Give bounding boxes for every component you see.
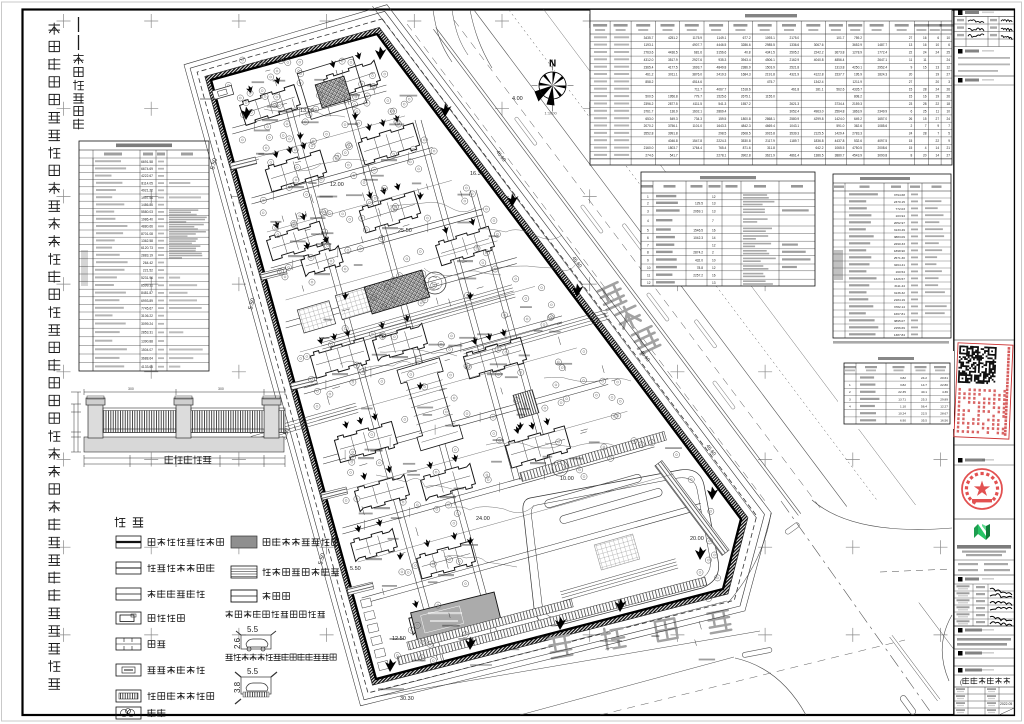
svg-text:6691.58: 6691.58: [141, 160, 153, 164]
svg-text:11: 11: [647, 274, 651, 278]
svg-text:35.5: 35.5: [921, 419, 927, 423]
svg-text:8701.08: 8701.08: [141, 232, 153, 236]
svg-text:8114.05: 8114.05: [141, 181, 153, 185]
svg-text:298.5: 298.5: [718, 132, 726, 136]
svg-text:24: 24: [946, 58, 950, 62]
svg-text:3915.8: 3915.8: [765, 132, 775, 136]
svg-text:2: 2: [647, 202, 649, 206]
svg-text:26: 26: [946, 95, 950, 99]
svg-text:3090.8: 3090.8: [877, 154, 887, 158]
svg-text:6674.69: 6674.69: [141, 167, 153, 171]
svg-text:40.8: 40.8: [744, 51, 750, 55]
svg-text:3756.1: 3756.1: [668, 124, 678, 128]
svg-text:22: 22: [936, 139, 940, 143]
svg-text:2162.9: 2162.9: [789, 58, 799, 62]
svg-text:19: 19: [936, 73, 940, 77]
svg-text:27: 27: [946, 154, 950, 158]
svg-text:3286.6: 3286.6: [741, 43, 751, 47]
svg-text:181.1: 181.1: [816, 87, 824, 91]
svg-text:4861.4: 4861.4: [789, 154, 799, 158]
svg-text:1602.1: 1602.1: [692, 109, 702, 113]
svg-text:8: 8: [647, 251, 649, 255]
svg-text:10: 10: [647, 266, 651, 270]
svg-text:1175.9: 1175.9: [692, 36, 702, 40]
svg-text:13: 13: [936, 65, 940, 69]
svg-text:4514.6: 4514.6: [692, 80, 702, 84]
svg-text:16: 16: [923, 36, 927, 40]
svg-text:3099.24: 3099.24: [141, 322, 153, 326]
svg-text:264.42: 264.42: [143, 261, 153, 265]
svg-text:29.89: 29.89: [940, 397, 948, 401]
svg-text:4750.5: 4750.5: [852, 146, 862, 150]
svg-text:14.7: 14.7: [921, 383, 927, 387]
svg-text:20: 20: [923, 154, 927, 158]
svg-text:1:1000: 1:1000: [545, 111, 558, 116]
svg-text:16: 16: [923, 43, 927, 47]
svg-text:22.35: 22.35: [898, 390, 906, 394]
svg-text:N: N: [549, 59, 556, 70]
svg-text:6: 6: [948, 43, 950, 47]
svg-text:7: 7: [937, 132, 939, 136]
svg-text:2224.3: 2224.3: [717, 139, 727, 143]
svg-text:4669.4: 4669.4: [765, 124, 775, 128]
svg-text:1065.5: 1065.5: [835, 146, 845, 150]
svg-text:20: 20: [936, 80, 940, 84]
svg-text:8: 8: [911, 154, 913, 158]
svg-text:3895.07: 3895.07: [894, 319, 905, 323]
svg-text:4907.7: 4907.7: [692, 43, 702, 47]
svg-text:3943.4: 3943.4: [741, 58, 751, 62]
svg-text:1342.4: 1342.4: [814, 80, 824, 84]
svg-text:2070.2: 2070.2: [644, 124, 654, 128]
svg-text:2985.5: 2985.5: [765, 43, 775, 47]
svg-text:12.27: 12.27: [940, 404, 948, 408]
svg-text:10: 10: [936, 43, 940, 47]
svg-text:2069.1: 2069.1: [693, 209, 703, 213]
svg-text:27: 27: [936, 117, 940, 121]
svg-text:3652.9: 3652.9: [852, 43, 862, 47]
svg-text:5: 5: [948, 132, 950, 136]
svg-text:22: 22: [936, 102, 940, 106]
svg-text:5: 5: [647, 228, 649, 232]
svg-text:1547.8: 1547.8: [692, 139, 702, 143]
svg-text:2365.4: 2365.4: [644, 65, 654, 69]
svg-text:2783.3: 2783.3: [852, 132, 862, 136]
svg-text:9: 9: [937, 124, 939, 128]
svg-text:2175.0: 2175.0: [789, 36, 799, 40]
svg-text:432.0: 432.0: [695, 258, 703, 262]
svg-text:24: 24: [936, 51, 940, 55]
svg-text:3688.64: 3688.64: [141, 357, 153, 361]
svg-text:2419.3: 2419.3: [717, 73, 727, 77]
svg-text:3.82: 3.82: [900, 376, 906, 380]
svg-text:3.8: 3.8: [233, 681, 242, 693]
svg-text:6: 6: [937, 36, 939, 40]
svg-text:2675.1: 2675.1: [741, 95, 751, 99]
svg-text:3782.14: 3782.14: [894, 305, 905, 309]
svg-text:2349.9: 2349.9: [877, 109, 887, 113]
svg-text:6120.73: 6120.73: [141, 246, 153, 250]
svg-text:1803.7: 1803.7: [668, 146, 678, 150]
svg-text:30.30: 30.30: [400, 696, 414, 702]
svg-text:7: 7: [948, 124, 950, 128]
svg-text:16.30: 16.30: [470, 171, 484, 177]
svg-text:13: 13: [712, 209, 716, 213]
svg-text:1824.3: 1824.3: [877, 73, 887, 77]
svg-text:3111.44: 3111.44: [894, 284, 905, 288]
svg-text:1278.9: 1278.9: [852, 51, 862, 55]
svg-text:642.2: 642.2: [816, 146, 824, 150]
svg-text:28: 28: [923, 132, 927, 136]
svg-text:711.7: 711.7: [694, 87, 702, 91]
svg-text:1313.8: 1313.8: [835, 65, 845, 69]
svg-text:1863.9: 1863.9: [852, 109, 862, 113]
svg-text:13: 13: [712, 202, 716, 206]
svg-text:3: 3: [647, 209, 649, 213]
svg-text:2257.2: 2257.2: [693, 274, 703, 278]
svg-text:11: 11: [923, 58, 927, 62]
svg-text:1486.86: 1486.86: [141, 203, 153, 207]
svg-text:649.2: 649.2: [854, 117, 862, 121]
svg-text:3794.68: 3794.68: [894, 193, 905, 197]
svg-text:3991.8: 3991.8: [668, 132, 678, 136]
svg-text:28: 28: [923, 102, 927, 106]
svg-text:12: 12: [712, 195, 716, 199]
svg-text:4856.4: 4856.4: [835, 58, 845, 62]
svg-text:1997.56: 1997.56: [141, 196, 153, 200]
svg-text:311.8: 311.8: [767, 146, 775, 150]
svg-text:12: 12: [712, 244, 716, 248]
svg-text:734.3: 734.3: [694, 117, 702, 121]
svg-text:681.6: 681.6: [694, 51, 702, 55]
svg-text:562.6: 562.6: [836, 87, 844, 91]
svg-text:10.24: 10.24: [898, 412, 906, 416]
svg-text:4921.22: 4921.22: [141, 189, 153, 193]
svg-text:1387.84: 1387.84: [894, 333, 905, 337]
svg-text:1.10: 1.10: [900, 404, 906, 408]
svg-text:15: 15: [909, 139, 913, 143]
svg-text:2763.6: 2763.6: [644, 51, 654, 55]
svg-text:2184.19: 2184.19: [894, 298, 905, 302]
svg-text:2191.8: 2191.8: [765, 73, 775, 77]
svg-text:3156.6: 3156.6: [717, 51, 727, 55]
svg-text:3106.22: 3106.22: [141, 314, 153, 318]
svg-text:3880.7: 3880.7: [835, 154, 845, 158]
svg-text:1424.0: 1424.0: [835, 117, 845, 121]
svg-text:3011.1: 3011.1: [668, 73, 678, 77]
svg-text:1503.9: 1503.9: [765, 65, 775, 69]
svg-text:808.2: 808.2: [854, 95, 862, 99]
svg-text:12: 12: [712, 266, 716, 270]
svg-text:12.00: 12.00: [330, 182, 344, 188]
svg-text:3876.0: 3876.0: [692, 73, 702, 77]
svg-text:2022.05: 2022.05: [1000, 702, 1012, 706]
svg-text:9: 9: [948, 139, 950, 143]
svg-text:2647.1: 2647.1: [877, 58, 887, 62]
svg-text:24: 24: [909, 132, 913, 136]
svg-text:1189.7: 1189.7: [790, 139, 800, 143]
svg-text:532.6: 532.6: [854, 139, 862, 143]
svg-text:24: 24: [923, 51, 927, 55]
svg-text:13.71: 13.71: [898, 397, 906, 401]
svg-text:3673.8: 3673.8: [835, 51, 845, 55]
svg-text:653.0: 653.0: [645, 117, 653, 121]
svg-text:4842.3: 4842.3: [741, 124, 751, 128]
svg-text:2608.5: 2608.5: [741, 132, 751, 136]
svg-text:160.54: 160.54: [896, 270, 906, 274]
svg-text:10: 10: [712, 258, 716, 262]
svg-text:2927.6: 2927.6: [692, 58, 702, 62]
svg-text:4046.8: 4046.8: [668, 139, 678, 143]
svg-text:13: 13: [712, 281, 716, 285]
svg-text:2156.69: 2156.69: [894, 326, 905, 330]
svg-text:765.4: 765.4: [718, 146, 726, 150]
svg-text:14: 14: [712, 236, 716, 240]
svg-text:7: 7: [925, 124, 927, 128]
svg-text:1836.8: 1836.8: [814, 139, 824, 143]
svg-text:24: 24: [946, 117, 950, 121]
svg-text:11: 11: [909, 58, 913, 62]
svg-text:2125.5: 2125.5: [814, 132, 824, 136]
svg-text:4506.1: 4506.1: [765, 58, 775, 62]
svg-text:1326.57: 1326.57: [894, 277, 905, 281]
svg-text:4.36: 4.36: [942, 390, 948, 394]
svg-text:1657.0: 1657.0: [877, 117, 887, 121]
svg-text:591.0: 591.0: [836, 124, 844, 128]
svg-text:1429.4: 1429.4: [835, 132, 845, 136]
svg-text:759.2: 759.2: [854, 36, 862, 40]
svg-text:779.7: 779.7: [694, 95, 702, 99]
svg-text:6: 6: [911, 109, 913, 113]
svg-text:4321.9: 4321.9: [789, 73, 799, 77]
svg-text:10: 10: [946, 36, 950, 40]
svg-text:1043.1: 1043.1: [789, 124, 799, 128]
svg-text:20.00: 20.00: [690, 536, 704, 542]
svg-text:15: 15: [923, 65, 927, 69]
svg-text:6.90: 6.90: [900, 419, 906, 423]
svg-text:2: 2: [712, 251, 714, 255]
svg-text:1: 1: [849, 383, 851, 387]
svg-text:475.7: 475.7: [767, 80, 775, 84]
svg-text:1764.4: 1764.4: [692, 146, 702, 150]
svg-text:27: 27: [909, 36, 913, 40]
svg-text:1093.1: 1093.1: [765, 36, 775, 40]
svg-text:9: 9: [911, 65, 913, 69]
svg-text:1155.0: 1155.0: [765, 95, 775, 99]
svg-text:4222.67: 4222.67: [141, 174, 153, 178]
svg-text:25.50: 25.50: [398, 228, 412, 234]
svg-text:541.7: 541.7: [670, 154, 678, 158]
svg-text:4040.8: 4040.8: [814, 58, 824, 62]
svg-text:362.6: 362.6: [854, 124, 862, 128]
svg-text:103.94: 103.94: [896, 214, 906, 218]
svg-text:13: 13: [909, 43, 913, 47]
svg-text:101.7: 101.7: [836, 36, 844, 40]
svg-text:2052.97: 2052.97: [894, 221, 905, 225]
svg-text:2396.2: 2396.2: [644, 102, 654, 106]
svg-text:28: 28: [923, 87, 927, 91]
svg-text:9: 9: [647, 258, 649, 262]
svg-text:1211.9: 1211.9: [852, 80, 862, 84]
svg-text:5.50: 5.50: [350, 566, 361, 572]
svg-text:677.2: 677.2: [743, 36, 751, 40]
svg-text:1643.3: 1643.3: [717, 124, 727, 128]
svg-text:16.56: 16.56: [940, 419, 948, 423]
svg-text:461.8: 461.8: [791, 87, 799, 91]
svg-text:4067.7: 4067.7: [717, 87, 727, 91]
svg-text:1487.7: 1487.7: [877, 43, 887, 47]
svg-text:3133.49: 3133.49: [894, 228, 905, 232]
svg-text:7745.67: 7745.67: [141, 306, 153, 310]
svg-text:2883.19: 2883.19: [141, 253, 153, 257]
svg-text:27: 27: [946, 73, 950, 77]
svg-text:2: 2: [911, 124, 913, 128]
svg-text:3761.7: 3761.7: [644, 109, 654, 113]
svg-text:2853.31: 2853.31: [141, 331, 153, 335]
svg-text:21: 21: [946, 146, 950, 150]
svg-text:1362.58: 1362.58: [141, 239, 153, 243]
svg-text:26: 26: [909, 117, 913, 121]
svg-text:10.00: 10.00: [560, 476, 574, 482]
svg-text:19: 19: [936, 95, 940, 99]
svg-text:1684.3: 1684.3: [741, 73, 751, 77]
svg-text:4880.66: 4880.66: [141, 225, 153, 229]
svg-text:4: 4: [925, 146, 927, 150]
svg-text:2874.2: 2874.2: [693, 251, 703, 255]
svg-text:5580.03: 5580.03: [141, 210, 153, 214]
svg-text:772.03: 772.03: [896, 207, 906, 211]
svg-text:40.1: 40.1: [921, 390, 927, 394]
svg-text:5231.96: 5231.96: [141, 276, 153, 280]
svg-text:3539.3: 3539.3: [789, 132, 799, 136]
svg-text:2159.3: 2159.3: [852, 102, 862, 106]
svg-text:1546.5: 1546.5: [693, 228, 703, 232]
svg-text:1504.07: 1504.07: [141, 348, 153, 352]
svg-text:1518.6: 1518.6: [741, 87, 751, 91]
svg-text:24: 24: [936, 87, 940, 91]
svg-text:4111.5: 4111.5: [693, 102, 703, 106]
svg-text:1336.6: 1336.6: [789, 43, 799, 47]
svg-text:2505.2: 2505.2: [789, 51, 799, 55]
svg-text:(: (: [960, 680, 962, 686]
svg-text:1085.6: 1085.6: [877, 124, 887, 128]
svg-text:4: 4: [647, 219, 649, 223]
svg-text:7: 7: [712, 219, 714, 223]
svg-text:935.3: 935.3: [718, 58, 726, 62]
svg-text:136.9: 136.9: [670, 109, 678, 113]
svg-text:11: 11: [936, 109, 940, 113]
svg-text:2571.30: 2571.30: [894, 256, 905, 260]
svg-text:4341.5: 4341.5: [765, 51, 775, 55]
svg-text:1557.2: 1557.2: [741, 102, 751, 106]
svg-text:4436.5: 4436.5: [668, 51, 678, 55]
svg-text:300: 300: [128, 387, 134, 391]
svg-text:4250.1: 4250.1: [852, 65, 862, 69]
svg-text:1898.90: 1898.90: [894, 249, 905, 253]
svg-text:1956.8: 1956.8: [668, 95, 678, 99]
svg-text:24.2: 24.2: [921, 376, 927, 380]
svg-text:2242.2: 2242.2: [814, 51, 824, 55]
svg-text:6993.89: 6993.89: [141, 299, 153, 303]
svg-text:1101.0: 1101.0: [692, 124, 702, 128]
svg-text:8599.31: 8599.31: [141, 284, 153, 288]
svg-text:3: 3: [849, 397, 851, 401]
svg-text:56.4: 56.4: [921, 404, 927, 408]
svg-text:500.5: 500.5: [645, 95, 653, 99]
svg-text:4.00: 4.00: [512, 96, 523, 102]
svg-text:3530.8: 3530.8: [741, 139, 751, 143]
svg-text:461.2: 461.2: [645, 73, 653, 77]
svg-text:3: 3: [948, 80, 950, 84]
svg-text:15: 15: [909, 95, 913, 99]
svg-text:5.5: 5.5: [247, 667, 259, 676]
svg-text:22.5: 22.5: [921, 412, 927, 416]
svg-text:300: 300: [218, 387, 224, 391]
svg-text:16: 16: [712, 228, 716, 232]
svg-text:8481.87: 8481.87: [141, 291, 153, 295]
svg-text:10: 10: [946, 109, 950, 113]
svg-text:20: 20: [909, 73, 913, 77]
svg-text:1693.7: 1693.7: [692, 65, 702, 69]
svg-text:15: 15: [923, 117, 927, 121]
svg-text:2580.9: 2580.9: [789, 117, 799, 121]
svg-text:4251.2: 4251.2: [668, 36, 678, 40]
svg-text:18: 18: [946, 102, 950, 106]
svg-text:3.82: 3.82: [900, 383, 906, 387]
svg-text:20.61: 20.61: [940, 376, 948, 380]
svg-text:2160.0: 2160.0: [644, 146, 654, 150]
svg-text:3902.8: 3902.8: [741, 154, 751, 158]
svg-text:1042.3: 1042.3: [693, 236, 703, 240]
svg-text:15: 15: [909, 146, 913, 150]
svg-text:3435.7: 3435.7: [644, 36, 654, 40]
svg-text:3621.9: 3621.9: [765, 154, 775, 158]
svg-text:2.6: 2.6: [233, 637, 242, 649]
svg-text:5.5: 5.5: [247, 625, 259, 634]
svg-text:15: 15: [909, 87, 913, 91]
svg-text:28.67: 28.67: [940, 412, 948, 416]
svg-text:1986.40: 1986.40: [141, 217, 153, 221]
svg-text:4312.0: 4312.0: [644, 58, 654, 62]
svg-text:858.2: 858.2: [645, 80, 653, 84]
svg-text:27: 27: [909, 80, 913, 84]
svg-text:4097.5: 4097.5: [877, 139, 887, 143]
svg-text:4133.65: 4133.65: [141, 365, 153, 369]
svg-text:23: 23: [909, 102, 913, 106]
svg-text:13.00: 13.00: [300, 108, 314, 114]
svg-text:25: 25: [923, 109, 927, 113]
svg-text:22.80: 22.80: [940, 383, 948, 387]
svg-text:12: 12: [946, 65, 950, 69]
svg-text:1390.88: 1390.88: [141, 339, 153, 343]
svg-text:4543.9: 4543.9: [852, 154, 862, 158]
svg-text:6: 6: [647, 236, 649, 240]
svg-text:2008.6: 2008.6: [877, 146, 887, 150]
svg-text:4299.8: 4299.8: [814, 117, 824, 121]
svg-text:16: 16: [712, 274, 716, 278]
svg-text:3264.41: 3264.41: [894, 263, 905, 267]
svg-text:3136.32: 3136.32: [894, 291, 905, 295]
svg-text:1537.7: 1537.7: [835, 73, 845, 77]
svg-text:2869.4: 2869.4: [717, 109, 727, 113]
svg-text:871.6: 871.6: [743, 146, 751, 150]
svg-text:3067.6: 3067.6: [814, 43, 824, 47]
svg-text:2370.15: 2370.15: [894, 200, 905, 204]
svg-text:25.3: 25.3: [921, 397, 927, 401]
svg-text:159.5: 159.5: [718, 117, 726, 121]
svg-text:541.3: 541.3: [718, 102, 726, 106]
svg-text:4849.8: 4849.8: [717, 65, 727, 69]
